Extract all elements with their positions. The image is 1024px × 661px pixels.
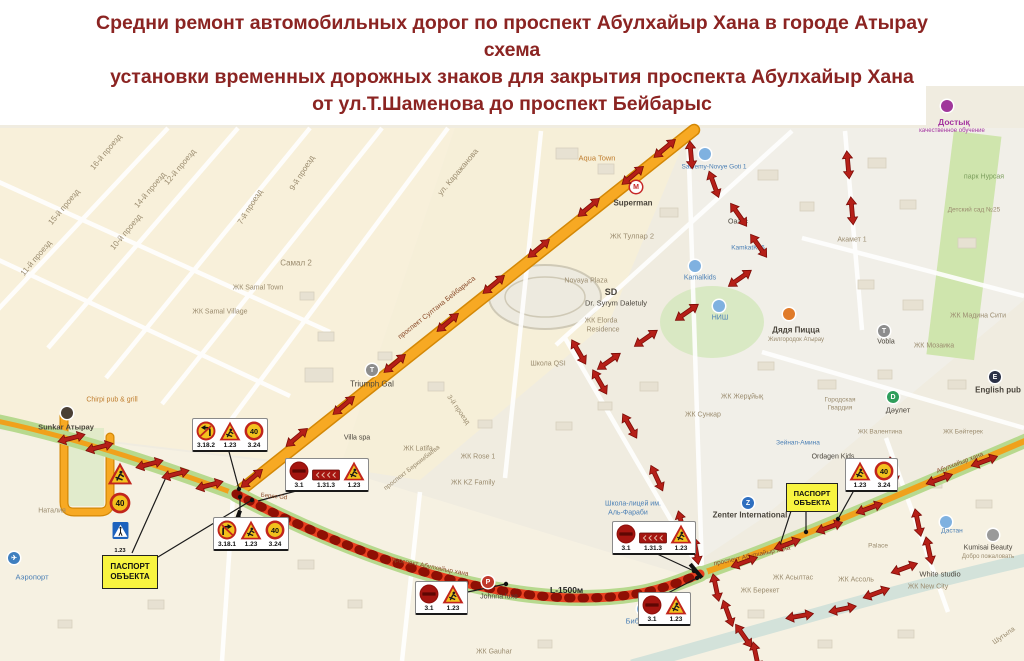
map-label: Самал 2 [280,259,312,268]
map-label: ЖК Ассоль [838,577,874,584]
traffic-sign-3.1: 3.1 [642,595,662,623]
map-label: Дастан [941,528,962,535]
map-label: ЖК Samal Village [192,309,247,316]
detour-arrow [679,139,700,170]
passport-line2: ОБЪЕКТА [787,498,837,507]
traffic-sign-3.18.1: 3.18.1 [217,520,237,548]
map-label: Жилгородок Атырау [768,337,824,343]
traffic-sign-3.18.2: 3.18.2 [196,421,216,449]
map-label: Aqua Town [579,154,616,163]
saulemy-icon [699,148,711,160]
traffic-sign-5.19.1 [112,521,129,545]
map-label: ЖК Берекет [741,588,780,595]
traffic-sign-1.23: 1.23 [219,421,241,449]
passport-line1: ПАСПОРТ [103,562,157,572]
map-label: Villa spa [344,435,370,442]
airport-icon: ✈ [8,552,20,564]
map-label: Детский сад №25 [948,207,1001,214]
map-label: парк Нурсая [964,174,1004,181]
title-line-1: Средни ремонт автомобильных дорог по про… [0,10,1024,37]
closure-length-label: L-1500м [550,585,583,595]
map-label: Novaya Plaza [564,278,607,285]
sign-number: 3.24 [269,541,282,548]
map-label: Zenter International [713,511,788,520]
title-line-3: установки временных дорожных знаков для … [0,64,1024,91]
traffic-sign-cluster: 3.18.11.23403.24 [213,517,289,551]
svg-text:40: 40 [271,526,279,535]
map-label: Kumisai Beauty [964,545,1013,552]
map-label: ЖК New City [908,584,949,591]
sign-number: 3.1 [647,616,656,623]
map-label: Добро пожаловать [962,554,1014,560]
sign-number: 1.23 [675,545,688,552]
map-label: НИШ [712,315,729,322]
map-label: Акамет 1 [837,237,866,244]
map-label: ЖК Валентина [858,429,902,436]
kamalkids-icon [689,260,701,272]
traffic-sign-cluster: 3.11.31.31.23 [285,458,369,492]
traffic-sign-1.23 [107,462,133,490]
svg-text:40: 40 [250,427,258,436]
johnna-luxe-icon: P [482,576,494,588]
traffic-sign-3.24: 403.24 [874,461,894,489]
map-label: SD [605,287,618,297]
map-label: ЖК Мозаика [914,343,954,350]
traffic-sign-cluster: 3.11.31.31.23 [612,521,696,555]
traffic-sign-cluster: 3.11.23 [638,592,691,626]
map-label: Зейнап-Амина [776,440,820,447]
map-label: English pub [975,386,1021,395]
map-label: ЖК Samal Town [233,285,284,292]
map-label: Superman [613,199,652,208]
traffic-sign-1.23: 1.23 [442,584,464,612]
sign-number: 1.23 [245,541,258,548]
daulet-icon: D [887,391,899,403]
sign-number: 3.1 [621,545,630,552]
traffic-sign-3.24: 40 [109,492,131,519]
map-label: Vobla [877,339,895,346]
vobla-icon: T [878,325,890,337]
map-label: ЖК Тулпар 2 [610,232,654,241]
traffic-sign-cluster: 3.11.23 [415,581,468,615]
dastan-icon [940,516,952,528]
traffic-sign-3.24: 403.24 [244,421,264,449]
traffic-sign-3.1: 3.1 [616,524,636,552]
sunkar-icon [61,407,73,419]
map-label: ЖК Gauhar [476,649,512,656]
traffic-sign-3.1: 3.1 [419,584,439,612]
traffic-sign-cluster: 1.23403.24 [845,458,898,492]
sign-number: 3.1 [424,605,433,612]
sign-number: 3.18.2 [197,442,215,449]
passport-object-box: ПАСПОРТОБЪЕКТА [102,555,158,589]
sign-number: 3.1 [294,482,303,489]
sign-number: 1.23 [348,482,361,489]
sign-number: 1.23 [447,605,460,612]
kumisai-icon [987,529,999,541]
map-label: Аль-Фараби [608,510,648,517]
detour-arrow [840,195,861,226]
map-label: Sunkar Атырау [38,423,94,432]
zenter-icon: Z [742,497,754,509]
traffic-sign-1.23: 1.23 [670,524,692,552]
traffic-sign-1.31.3: 1.31.3 [639,532,667,552]
map-label: Школа-лицей им. [605,501,661,508]
map-label: Palace [868,543,888,550]
passport-object-box: ПАСПОРТОБЪЕКТА [786,483,838,512]
svg-text:40: 40 [116,499,125,508]
map-label: Достық [938,117,970,127]
traffic-sign-1.23: 1.23 [849,461,871,489]
triumph-icon: T [366,364,378,376]
sign-number: 1.23 [224,442,237,449]
traffic-sign-cluster: 3.18.21.23403.24 [192,418,268,452]
map-label: ЖК Асылтас [773,575,813,582]
passport-line2: ОБЪЕКТА [103,572,157,582]
map-label: Наталия [38,508,66,515]
nish-icon [713,300,725,312]
map-label: качественное обучение [919,128,985,134]
map-label: Chirpi pub & grill [86,397,137,404]
map-label: Triumph Gal [350,380,394,389]
traffic-sign-1.23: 1.23 [343,461,365,489]
sign-number: 1.23 [670,616,683,623]
map-label: ЖК KZ Family [451,480,495,487]
map-label: Dr. Syrym Daletuly [585,299,647,308]
map-label: ЖК Мәдина Сити [950,313,1006,320]
english-pub-icon: E [989,371,1001,383]
pizza-icon [783,308,795,320]
map-label: Школа QSI [530,361,565,368]
map-label: Гвардия [828,405,853,412]
sign-number: 3.24 [248,442,261,449]
scheme-title: Средни ремонт автомобильных дорог по про… [0,10,1024,118]
map-label: Дядя Пицца [772,326,819,335]
map-label: ЖК Бәйтерек [943,429,983,436]
traffic-sign-1.23: 1.23 [240,520,262,548]
map-label: Johnna luxe [480,594,518,601]
traffic-sign-1.23: 1.23 [665,595,687,623]
map-label: Residence [586,327,619,334]
map-label: ЖК Жерұйық [721,394,763,401]
passport-line1: ПАСПОРТ [787,489,837,498]
detour-arrow [836,149,857,180]
title-line-2: схема [0,37,1024,64]
title-line-4: от ул.Т.Шаменова до проспект Бейбарыс [0,91,1024,118]
map-label: ЖК Rose 1 [461,454,496,461]
sign-number: 3.18.1 [218,541,236,548]
map-label: White studio [919,570,960,579]
traffic-sign-3.24: 403.24 [265,520,285,548]
svg-text:40: 40 [880,467,888,476]
sign-number: 1.23 [854,482,867,489]
sign-number: 3.24 [878,482,891,489]
map-label: Городская [825,397,856,404]
road-closure-scheme: Средни ремонт автомобильных дорог по про… [0,0,1024,661]
sign-number: 1.31.3 [644,545,662,552]
map-label: ЖК Сункар [685,412,721,419]
map-label: Дәулет [886,406,911,415]
traffic-sign-3.1: 3.1 [289,461,309,489]
map-label: ЖК Elorda [585,318,618,325]
map-label: Kamalkids [684,275,716,282]
sign-number: 1.31.3 [317,482,335,489]
traffic-sign-1.31.3: 1.31.3 [312,469,340,489]
map-label: Аэропорт [15,573,48,582]
